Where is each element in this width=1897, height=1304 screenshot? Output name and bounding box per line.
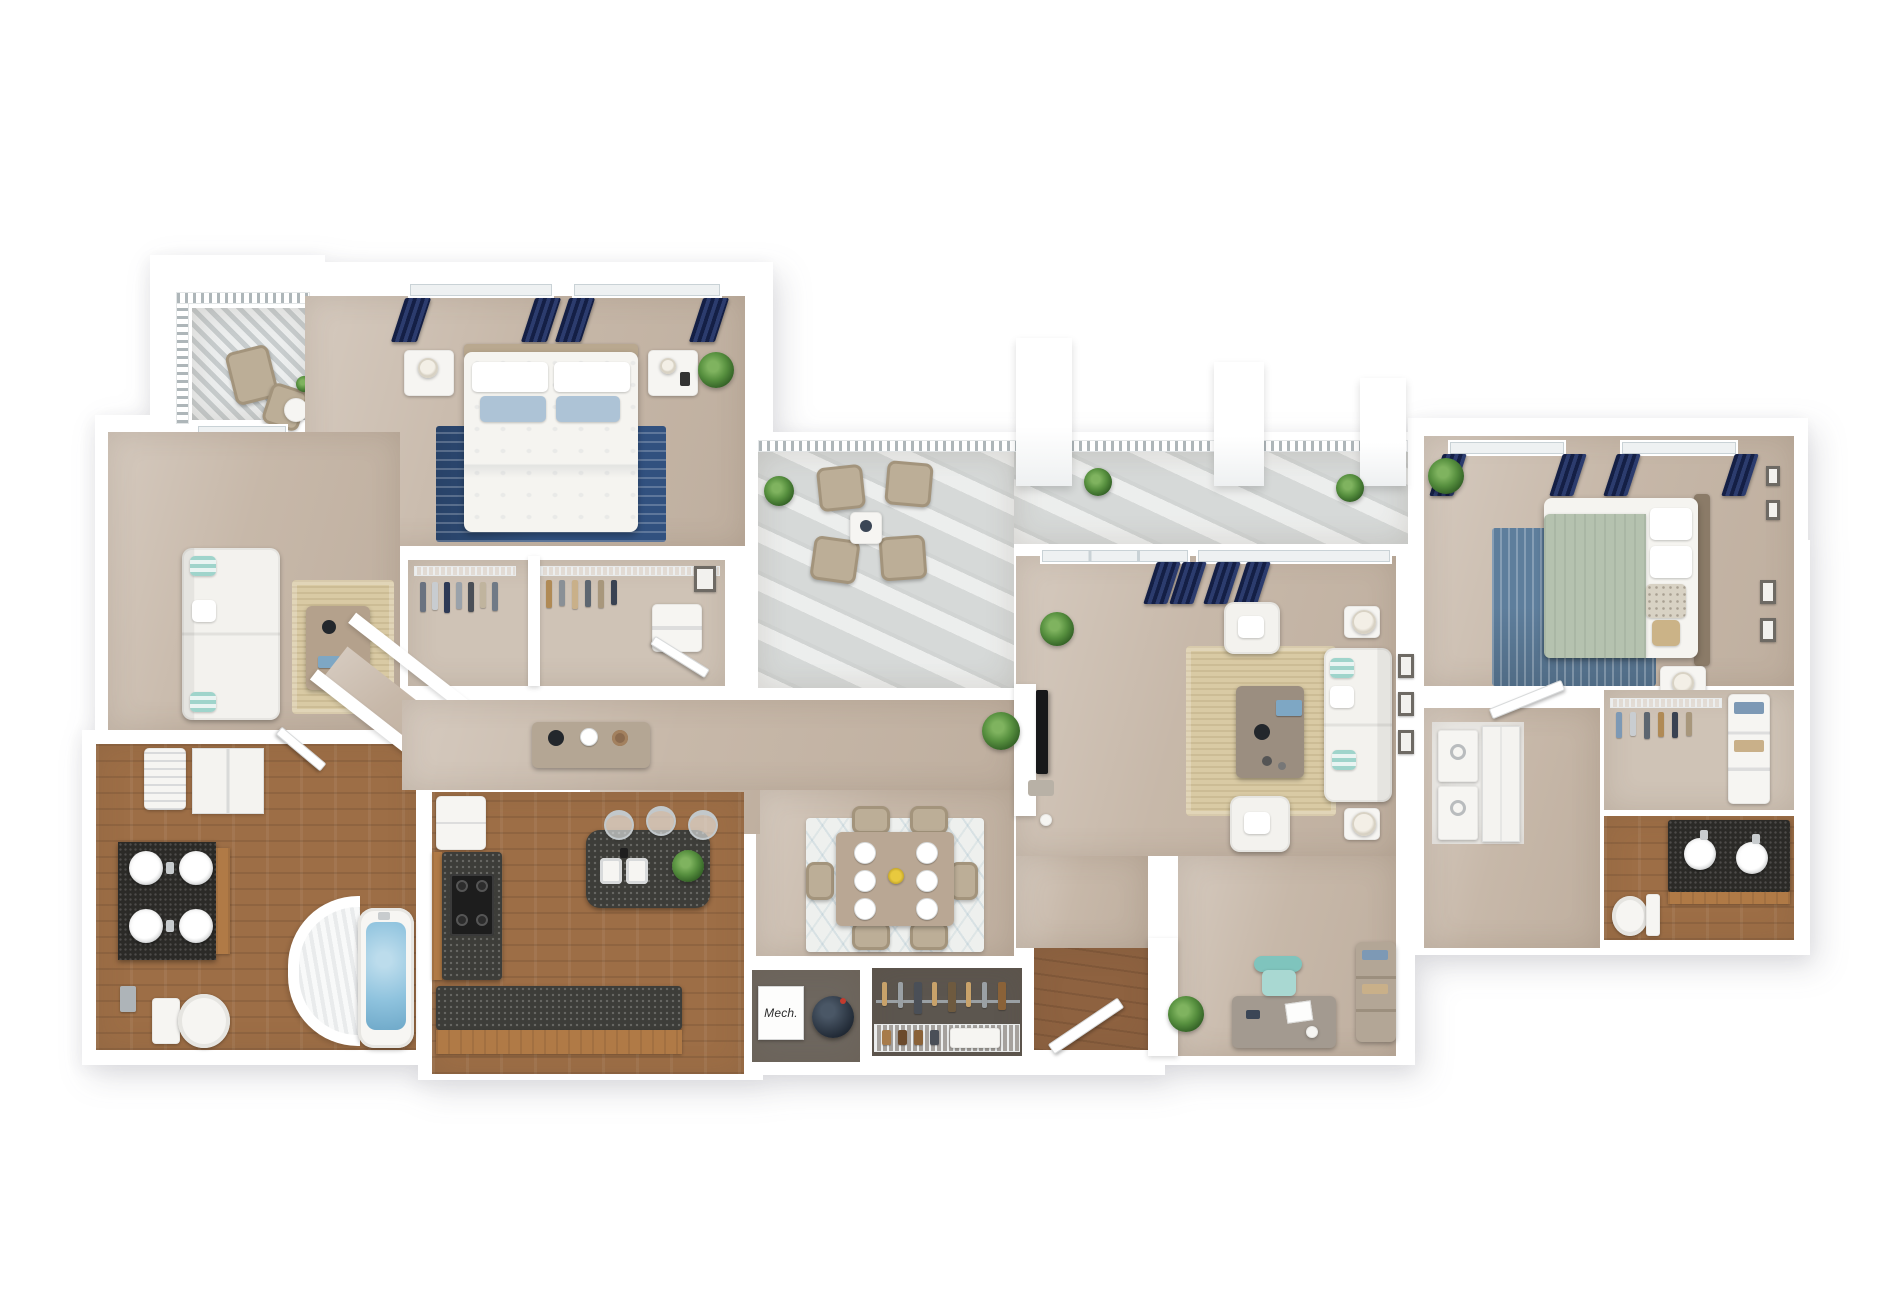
- closet-rack: [1610, 698, 1722, 708]
- toilet-bowl: [178, 994, 230, 1048]
- plant-icon: [764, 476, 794, 506]
- shoe-tray: [950, 1028, 1000, 1048]
- decor-vase-icon: [1254, 724, 1270, 740]
- hanging-garment: [1658, 712, 1664, 737]
- pillow-teal: [190, 556, 216, 576]
- pillow: [192, 600, 216, 622]
- place-setting: [854, 870, 876, 892]
- hanging-garment: [1686, 712, 1692, 736]
- entry-floor: [1034, 948, 1152, 1050]
- dryer-door-icon: [1450, 800, 1466, 816]
- wall-frame-icon: [1766, 500, 1780, 520]
- hall-to-entry-floor: [1016, 856, 1148, 948]
- sink-basin: [1684, 838, 1716, 870]
- towel-icon: [120, 986, 136, 1012]
- media-stand: [1028, 780, 1054, 796]
- patio-chair: [879, 534, 928, 581]
- sink-basin: [179, 851, 213, 885]
- decor-icon: [860, 520, 872, 532]
- paper-icon: [1285, 1000, 1314, 1023]
- pillow-blue: [480, 396, 546, 422]
- place-setting: [854, 842, 876, 864]
- bar-stool: [688, 810, 718, 840]
- pillow-teal: [1332, 750, 1356, 770]
- sink-basin: [129, 851, 163, 885]
- terrace-pier: [1214, 362, 1264, 486]
- sink-basin: [129, 909, 163, 943]
- book-icon: [1276, 700, 1302, 716]
- nightstand: [648, 350, 698, 396]
- bedroom1-window: [572, 282, 722, 298]
- terrace-pier: [1016, 338, 1072, 486]
- toilet-bowl: [1612, 896, 1648, 936]
- place-setting: [916, 842, 938, 864]
- vanity-cabinet-edge: [216, 848, 230, 954]
- pillow: [1238, 616, 1264, 638]
- terrace-pier: [1360, 378, 1406, 486]
- plant-icon: [982, 712, 1020, 750]
- faucet-icon: [1700, 830, 1708, 840]
- mech-label: Mech.: [764, 1006, 798, 1020]
- faucet-icon: [166, 862, 174, 874]
- burner-icon: [476, 880, 488, 892]
- folded-jeans-icon: [1734, 702, 1764, 714]
- closet-shelf: [540, 566, 720, 576]
- heater-valve-icon: [840, 998, 846, 1004]
- wall-frame-icon: [694, 566, 716, 592]
- dining-chair: [910, 922, 948, 950]
- hanging-garment: [1672, 712, 1678, 738]
- pillow: [1650, 546, 1692, 578]
- shoes-icon: [914, 1030, 923, 1045]
- pillow: [472, 362, 548, 392]
- floor-lamp-icon: [1352, 610, 1376, 634]
- toilet-tank: [152, 998, 180, 1044]
- decor-vase-icon: [548, 730, 564, 746]
- table-lamp-icon: [660, 358, 676, 374]
- wall-frame-icon: [1398, 654, 1414, 678]
- table-lamp-icon: [418, 358, 438, 378]
- hanging-garment: [572, 580, 578, 609]
- cup-icon: [1306, 1026, 1318, 1038]
- pillow-gold: [1652, 620, 1680, 646]
- dining-chair: [852, 806, 890, 834]
- burner-icon: [456, 914, 468, 926]
- plant-icon: [672, 850, 704, 882]
- hanging-garment: [948, 982, 956, 1012]
- hanging-garment: [598, 580, 604, 608]
- hanging-garment: [998, 982, 1006, 1010]
- mech-unit: Mech.: [758, 986, 804, 1040]
- floor-lamp-icon: [1352, 812, 1376, 836]
- hanging-garment: [611, 580, 617, 605]
- hanger-icon: [982, 982, 987, 1008]
- folded-clothes-icon: [1734, 740, 1764, 752]
- wall-frame-icon: [1766, 466, 1780, 486]
- water-heater-icon: [812, 996, 854, 1038]
- wall-frame-icon: [1398, 692, 1414, 716]
- bar-stool: [604, 810, 634, 840]
- place-setting: [854, 898, 876, 920]
- sage-blanket: [1544, 514, 1646, 658]
- dining-chair: [806, 862, 834, 900]
- dining-chair: [910, 806, 948, 834]
- phone-icon: [1246, 1010, 1260, 1019]
- place-setting: [916, 898, 938, 920]
- decor-knot-icon: [612, 730, 628, 746]
- hanging-garment: [492, 582, 498, 611]
- entry-office-wall: [1148, 938, 1178, 1056]
- hallway-floor: [402, 700, 1014, 790]
- sink-basin: [1736, 842, 1768, 874]
- burner-icon: [476, 914, 488, 926]
- pillow-blue: [556, 396, 620, 422]
- faucet-icon: [166, 920, 174, 932]
- shoes-icon: [898, 1030, 907, 1045]
- refrigerator: [436, 796, 486, 850]
- island-sink: [626, 858, 648, 884]
- tv-wall-stub: [1014, 684, 1036, 816]
- pillow: [554, 362, 630, 392]
- washer-door-icon: [1450, 744, 1466, 760]
- bar-stool: [646, 806, 676, 836]
- plant-icon: [1168, 996, 1204, 1032]
- plant-icon: [1428, 458, 1464, 494]
- plant-icon: [1040, 612, 1074, 646]
- balcony-railing-left: [176, 302, 189, 424]
- cabinet-run-edge: [432, 852, 442, 980]
- sink-basin: [179, 909, 213, 943]
- hanging-garment: [432, 582, 438, 610]
- hanging-garment: [585, 580, 591, 607]
- closet-divider-wall: [528, 556, 540, 686]
- closet-shelf: [414, 566, 516, 576]
- hanging-garment: [444, 582, 450, 613]
- island-faucet-icon: [620, 848, 628, 858]
- decor-icon: [1262, 756, 1272, 766]
- plant-icon: [698, 352, 734, 388]
- hanging-garment: [468, 582, 474, 612]
- terrace-railing: [758, 440, 1408, 452]
- hanging-garment: [914, 982, 922, 1014]
- laundry-doors: [1482, 726, 1520, 842]
- linen-cabinet: [192, 748, 264, 814]
- pillow-teal: [190, 692, 216, 712]
- bedroom1-window: [408, 282, 554, 298]
- place-setting: [916, 870, 938, 892]
- pillow: [1650, 508, 1692, 540]
- tub-faucet-icon: [378, 912, 390, 920]
- hanging-garment: [480, 582, 486, 608]
- kitchen-counter-bottom: [436, 986, 682, 1030]
- hanging-garment: [1644, 712, 1650, 739]
- hanger-icon: [966, 982, 971, 1007]
- tv-icon: [1036, 690, 1048, 774]
- decor-icon: [1278, 762, 1286, 770]
- hanging-garment: [420, 582, 426, 612]
- hanger-icon: [932, 982, 937, 1006]
- decor-plate-icon: [580, 728, 598, 746]
- dining-chair: [950, 862, 978, 900]
- hanging-garment: [559, 580, 565, 606]
- plant-icon: [1084, 468, 1112, 496]
- flower-centerpiece-icon: [888, 868, 904, 884]
- plant-icon: [1336, 474, 1364, 502]
- hanging-garment: [546, 580, 552, 608]
- pillow: [1244, 812, 1270, 834]
- pillow-patterned: [1646, 584, 1686, 618]
- pillow-teal: [1330, 658, 1354, 678]
- patio-chair: [816, 464, 866, 513]
- tub-water: [366, 922, 406, 1030]
- toilet-tank: [1646, 894, 1660, 936]
- phone-icon: [680, 372, 690, 386]
- wall-frame-icon: [1398, 730, 1414, 754]
- burner-icon: [456, 880, 468, 892]
- decor-vase-icon: [322, 620, 336, 634]
- books-icon: [1362, 984, 1388, 994]
- cabinet-run-bottom: [436, 1030, 682, 1054]
- pillow: [1330, 686, 1354, 708]
- water-heater-closet: [144, 748, 186, 810]
- apartment-floor-plan: Mech.: [0, 0, 1897, 1304]
- office-chair-seat: [1262, 970, 1296, 996]
- faucet-icon: [1752, 834, 1760, 844]
- vanity2-cabinet-edge: [1668, 892, 1790, 904]
- wall-frame-icon: [1760, 580, 1776, 604]
- decor-icon: [1040, 814, 1052, 826]
- hanging-garment: [456, 582, 462, 609]
- hanging-garment: [1616, 712, 1622, 738]
- dining-chair: [852, 922, 890, 950]
- patio-chair: [884, 460, 934, 508]
- shoes-icon: [930, 1030, 939, 1045]
- wall-frame-icon: [1760, 618, 1776, 642]
- hanger-icon: [898, 982, 903, 1008]
- shoes-icon: [882, 1030, 891, 1045]
- island-sink: [600, 858, 622, 884]
- balcony-railing-top: [176, 292, 310, 304]
- hanger-icon: [882, 982, 887, 1006]
- hanging-garment: [1630, 712, 1636, 736]
- books-icon: [1362, 950, 1388, 960]
